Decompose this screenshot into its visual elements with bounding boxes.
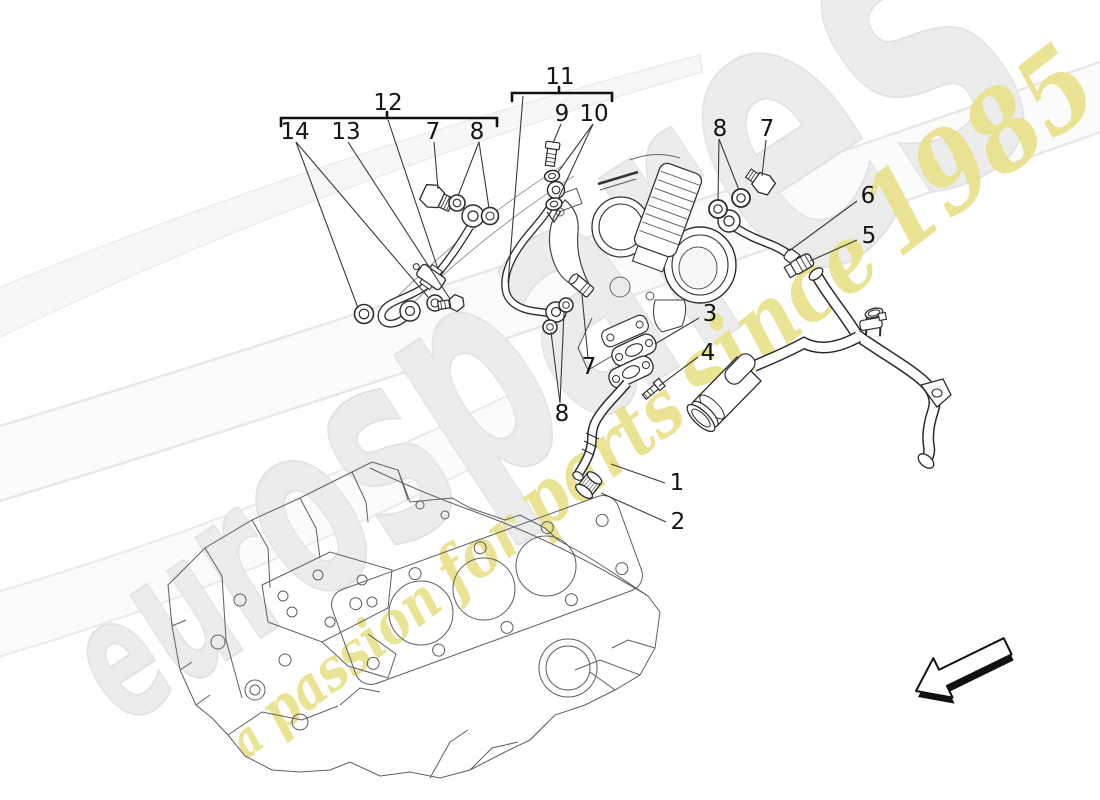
callout-3: 3 [703,301,718,327]
callout-5: 5 [862,223,877,249]
callout-4: 4 [701,340,716,366]
washer-8-left-b [482,208,499,225]
callout-7-left: 7 [426,119,441,145]
callout-7-right: 7 [760,116,775,142]
washer-8-left-a [449,195,465,211]
callout-12: 12 [373,90,402,116]
washer-8-right-b [732,189,750,207]
washer-8-right-a [709,200,727,218]
callout-11: 11 [545,64,574,90]
callout-8-left: 8 [470,119,485,145]
turbocharging-lubrication-parts-diagram: eurospares apassionforpartssince1985 [0,0,1100,800]
callout-10: 10 [579,101,608,127]
callout-14: 14 [280,119,309,145]
callout-7-mid: 7 [582,354,597,380]
callout-1: 1 [670,470,685,496]
callout-6: 6 [861,183,876,209]
direction-arrow-icon [906,627,1019,717]
callout-13: 13 [331,119,360,145]
callout-8-right: 8 [713,116,728,142]
callout-8-mid: 8 [555,401,570,427]
washer-8-mid-a [559,298,573,312]
washer-8-mid-b [543,320,557,334]
callout-2: 2 [671,509,686,535]
diagram-canvas: eurospares apassionforpartssince1985 [0,0,1100,800]
callout-9: 9 [555,101,570,127]
